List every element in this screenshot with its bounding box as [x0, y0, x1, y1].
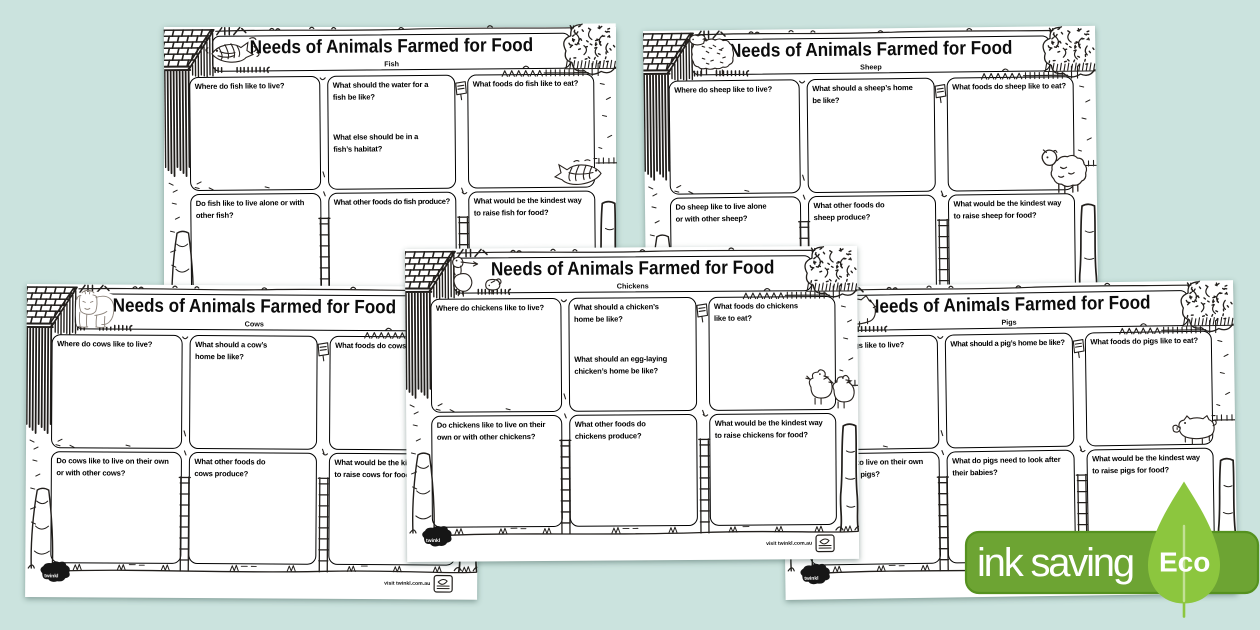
svg-text:Eco: Eco: [1159, 547, 1210, 578]
svg-text:ink saving: ink saving: [977, 541, 1133, 585]
